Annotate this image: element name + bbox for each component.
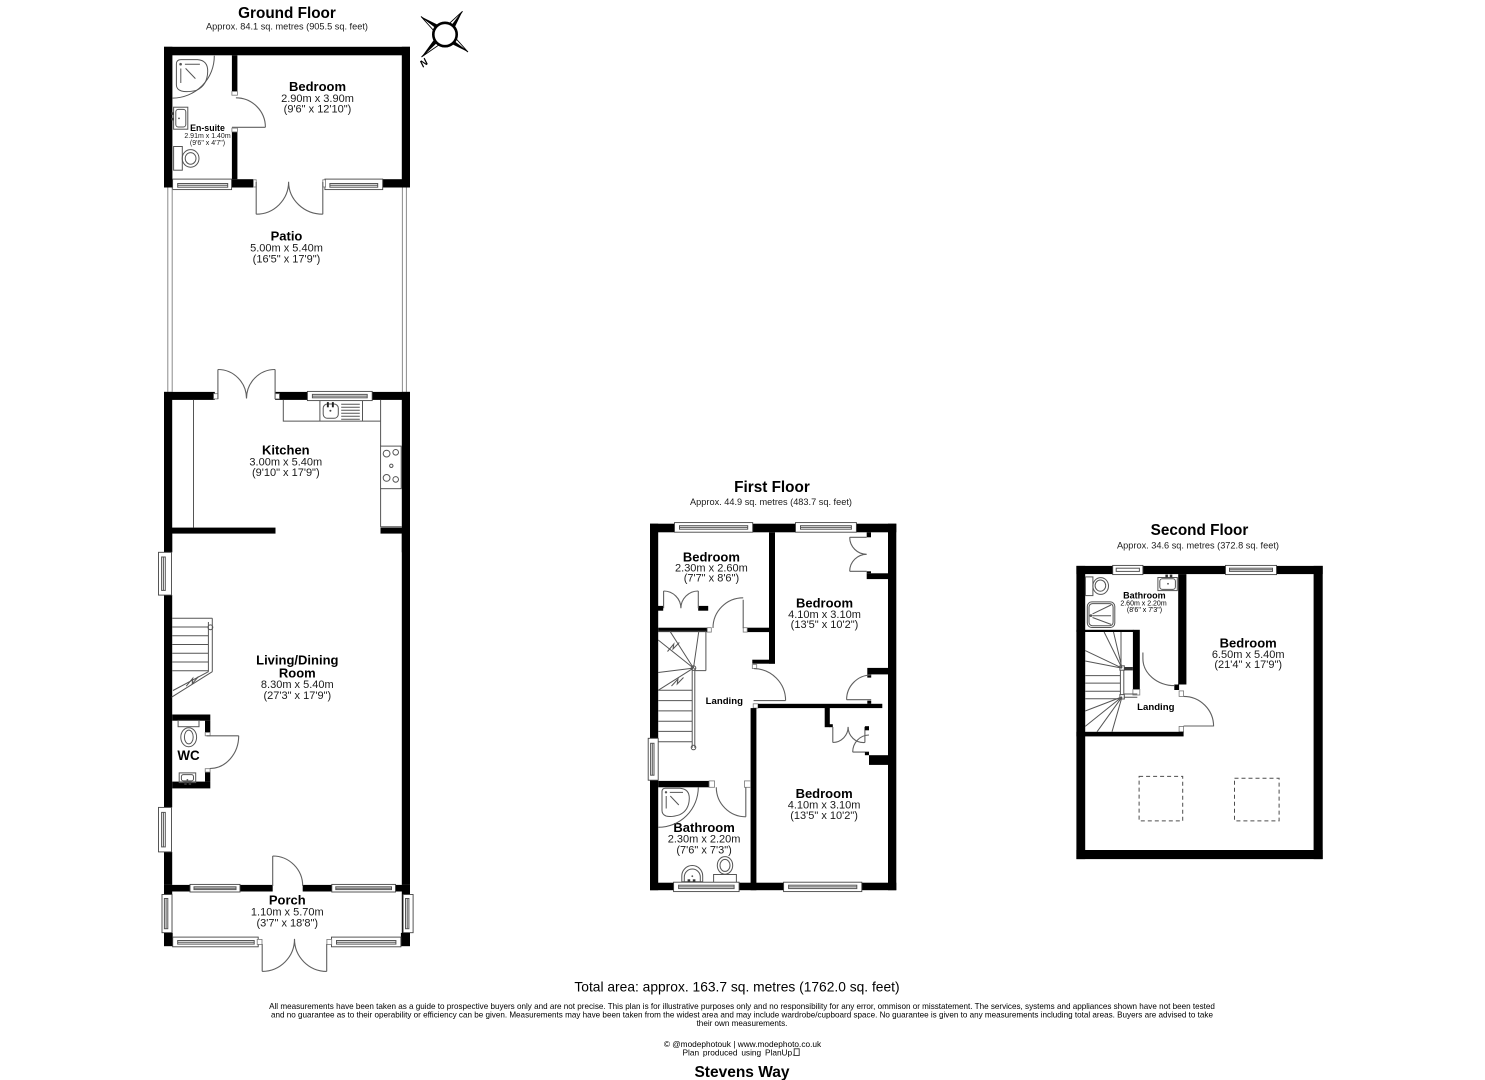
svg-text:Landing: Landing <box>1137 702 1174 713</box>
svg-text:(9'6" x 4'7"): (9'6" x 4'7") <box>190 140 225 147</box>
svg-text:and no guarantee as to their o: and no guarantee as to their operability… <box>271 1011 1213 1020</box>
svg-text:En-suite: En-suite <box>190 123 225 133</box>
svg-text:Bedroom: Bedroom <box>289 79 346 94</box>
svg-text:Second Floor: Second Floor <box>1151 522 1249 539</box>
svg-text:2.91m x 1.40m: 2.91m x 1.40m <box>184 133 230 140</box>
svg-text:their own measurements.: their own measurements. <box>697 1019 788 1028</box>
svg-text:(9'6" x 12'10"): (9'6" x 12'10") <box>284 103 352 115</box>
svg-text:Patio: Patio <box>271 229 303 244</box>
svg-text:Approx. 84.1 sq. metres (905.5: Approx. 84.1 sq. metres (905.5 sq. feet) <box>206 22 368 32</box>
svg-text:(21'4" x 17'9"): (21'4" x 17'9") <box>1214 659 1282 671</box>
svg-text:(13'5" x 10'2"): (13'5" x 10'2") <box>790 810 858 822</box>
svg-text:Approx. 44.9 sq. metres (483.7: Approx. 44.9 sq. metres (483.7 sq. feet) <box>690 497 852 507</box>
svg-text:(7'7" x 8'6"): (7'7" x 8'6") <box>684 573 739 585</box>
svg-text:Landing: Landing <box>706 696 743 707</box>
svg-text:Kitchen: Kitchen <box>262 442 310 457</box>
svg-text:Ground Floor: Ground Floor <box>238 5 336 22</box>
svg-text:Bathroom: Bathroom <box>673 820 734 835</box>
svg-text:(3'7" x 18'8"): (3'7" x 18'8") <box>257 917 319 929</box>
svg-text:Total area: approx. 163.7 sq.: Total area: approx. 163.7 sq. metres (17… <box>574 979 899 994</box>
svg-text:Plan produced using PlanUp.: Plan produced using PlanUp. <box>683 1048 795 1058</box>
svg-text:(27'3" x 17'9"): (27'3" x 17'9") <box>263 690 331 702</box>
svg-text:Bathroom: Bathroom <box>1123 590 1166 600</box>
svg-text:(16'5" x 17'9"): (16'5" x 17'9") <box>253 253 321 265</box>
svg-text:(9'10" x 17'9"): (9'10" x 17'9") <box>252 467 320 479</box>
svg-text:Room: Room <box>279 665 316 680</box>
svg-text:Porch: Porch <box>269 893 306 908</box>
svg-text:First Floor: First Floor <box>734 479 810 496</box>
svg-text:WC: WC <box>177 748 200 763</box>
svg-text:Stevens Way: Stevens Way <box>694 1064 789 1080</box>
svg-text:Approx. 34.6 sq. metres (372.8: Approx. 34.6 sq. metres (372.8 sq. feet) <box>1117 541 1279 551</box>
svg-text:(13'5" x 10'2"): (13'5" x 10'2") <box>791 619 859 631</box>
svg-text:All measurements have been tak: All measurements have been taken as a gu… <box>269 1002 1215 1011</box>
svg-text:(7'6" x 7'3"): (7'6" x 7'3") <box>676 845 731 857</box>
svg-text:(8'6" x 7'3"): (8'6" x 7'3") <box>1127 607 1162 614</box>
